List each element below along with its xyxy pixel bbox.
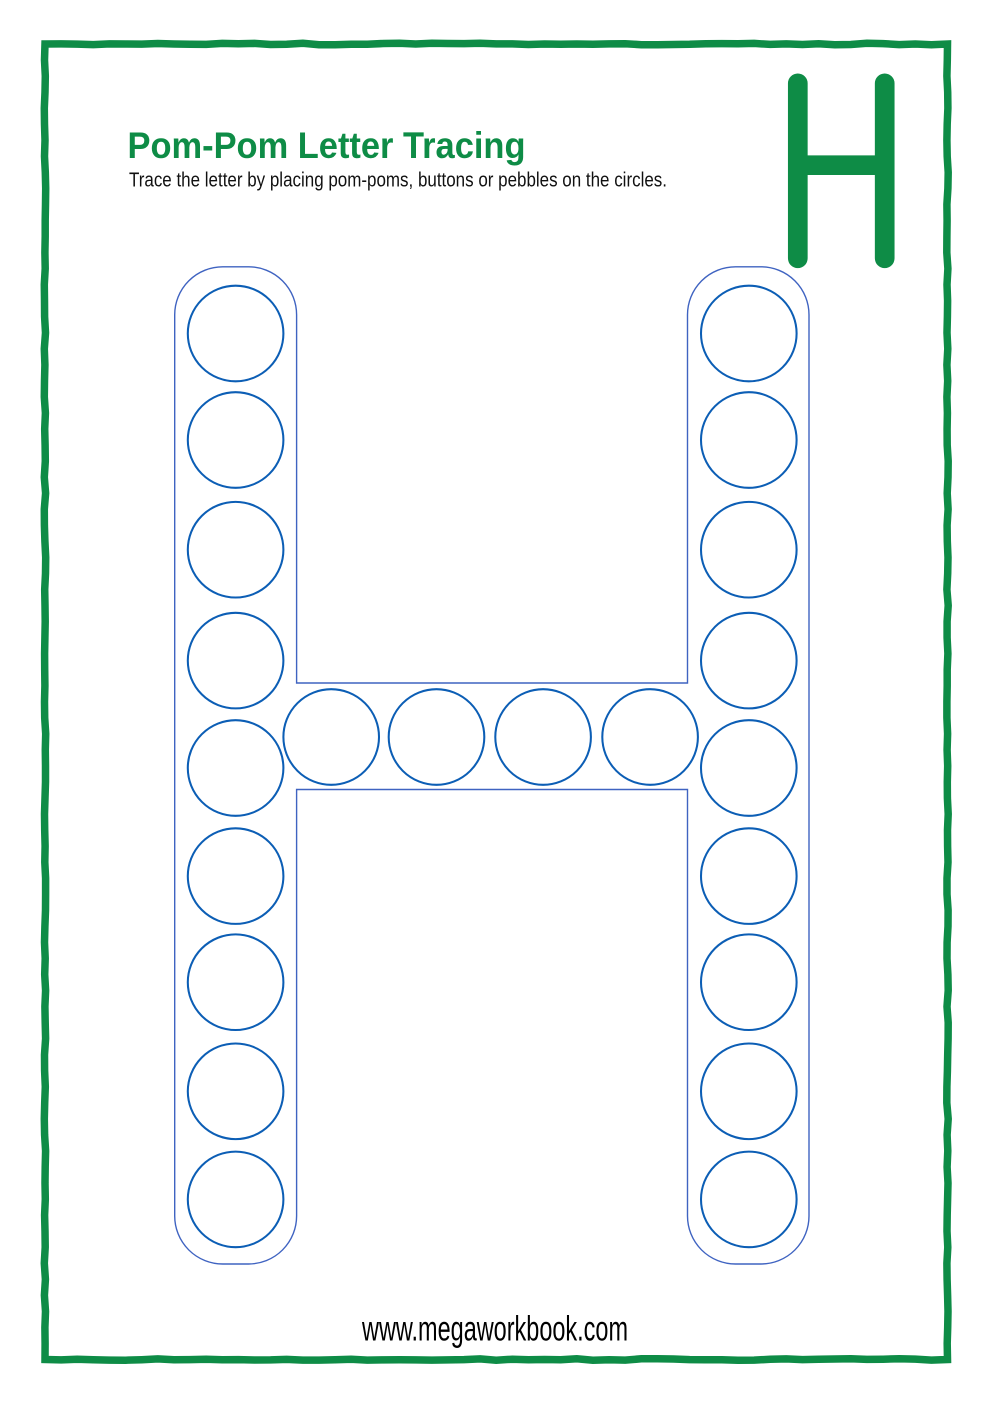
svg-text:www.megaworkbook.com: www.megaworkbook.com [361,1310,628,1349]
svg-text:Trace the letter by placing po: Trace the letter by placing pom-poms, bu… [129,170,667,192]
svg-text:Pom-Pom Letter Tracing: Pom-Pom Letter Tracing [128,125,526,166]
